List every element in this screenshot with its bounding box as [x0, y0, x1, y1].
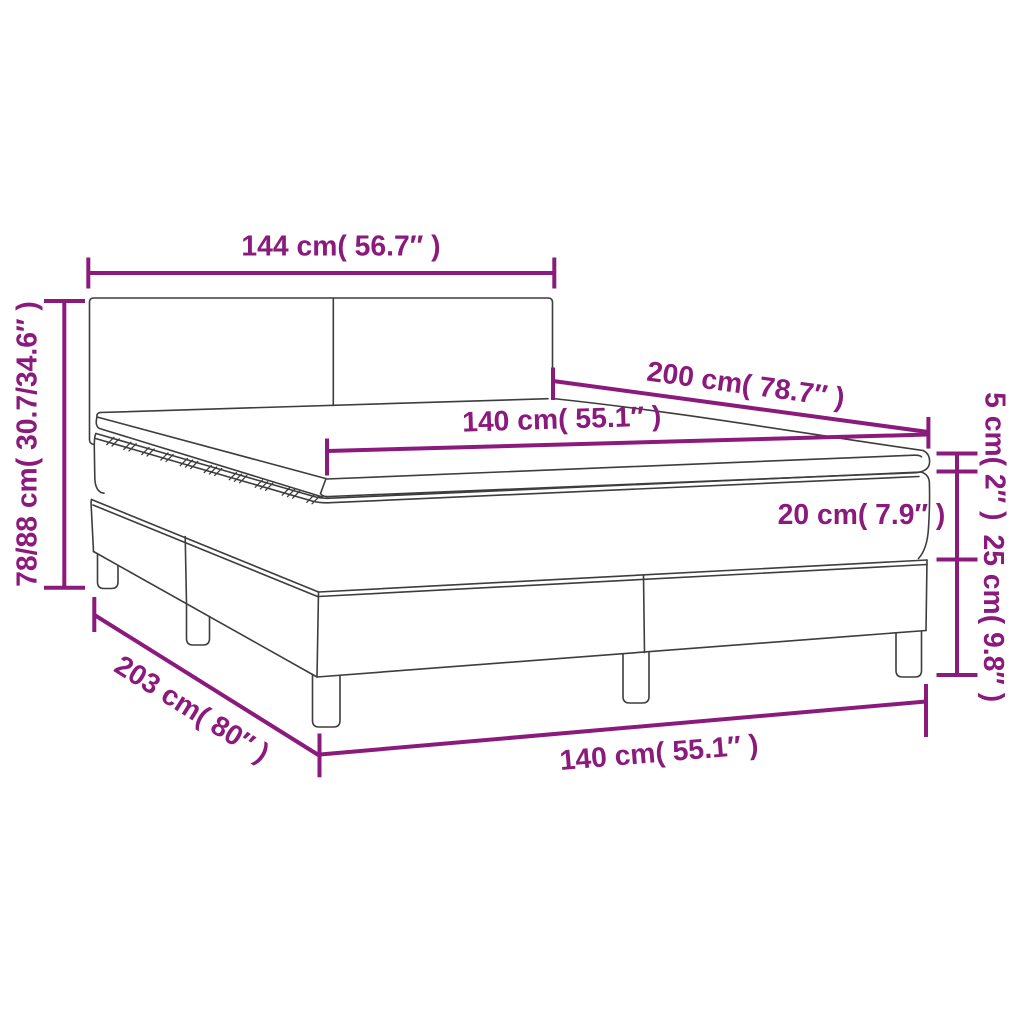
svg-text:25 cm( 9.8″ ): 25 cm( 9.8″ )	[978, 534, 1010, 702]
svg-text:144 cm( 56.7″ ): 144 cm( 56.7″ )	[241, 230, 440, 262]
svg-text:20 cm( 7.9″ ): 20 cm( 7.9″ )	[778, 498, 946, 530]
svg-text:78/88 cm( 30.7/34.6″ ): 78/88 cm( 30.7/34.6″ )	[10, 301, 42, 587]
svg-text:140 cm( 55.1″ ): 140 cm( 55.1″ )	[462, 399, 662, 437]
svg-text:5 cm( 2″ ): 5 cm( 2″ )	[980, 392, 1012, 520]
